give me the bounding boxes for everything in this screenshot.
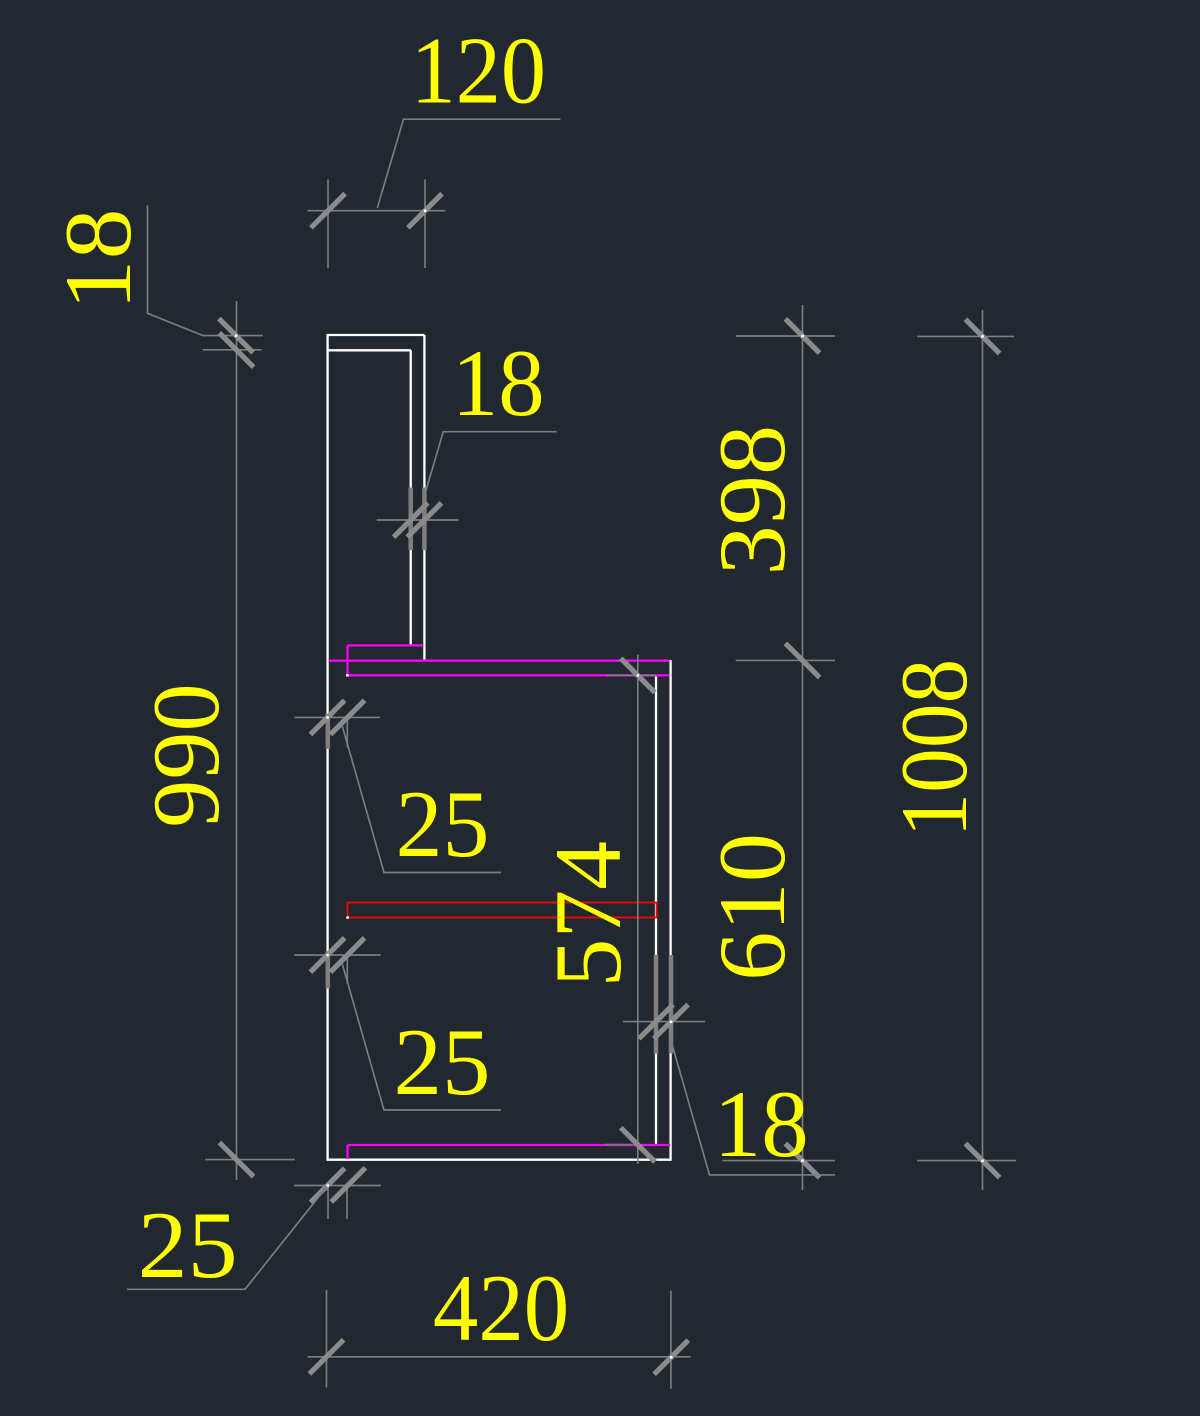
svg-text:420: 420 — [433, 1255, 569, 1361]
svg-text:990: 990 — [133, 683, 239, 827]
svg-text:120: 120 — [411, 18, 546, 124]
svg-text:610: 610 — [699, 833, 805, 981]
svg-text:25: 25 — [394, 1009, 491, 1115]
svg-text:18: 18 — [452, 330, 545, 436]
svg-text:18: 18 — [714, 1071, 809, 1177]
svg-text:18: 18 — [45, 209, 151, 311]
svg-text:25: 25 — [138, 1192, 238, 1298]
svg-text:574: 574 — [535, 841, 641, 988]
svg-text:25: 25 — [396, 771, 490, 877]
svg-text:1008: 1008 — [881, 659, 987, 838]
svg-text:398: 398 — [699, 425, 805, 576]
